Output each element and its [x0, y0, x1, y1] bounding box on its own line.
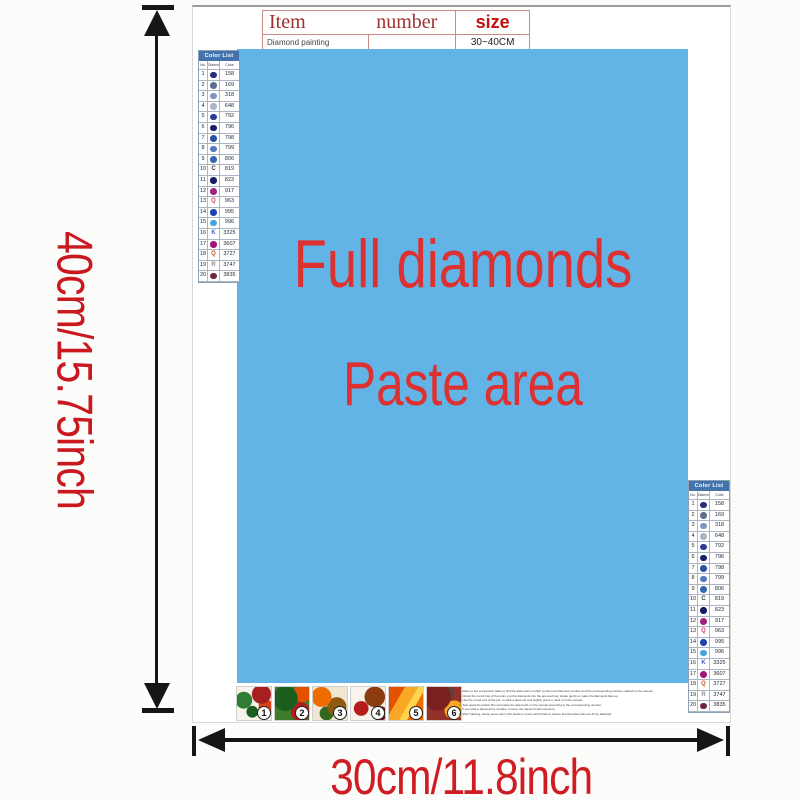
diamond-symbol-icon [698, 564, 710, 575]
color-row-number: 16 [689, 659, 698, 670]
color-row-code: 917 [710, 617, 729, 628]
diamond-symbol-icon: Q [698, 627, 710, 638]
steps-row: 123456 [236, 686, 464, 721]
instruction-line: 6. After finishing, clamp press them wit… [459, 712, 697, 717]
color-list-row: 13 Q 963 [199, 197, 239, 208]
color-list-col-no: No. [689, 491, 698, 500]
step-image-4: 4 [350, 686, 386, 721]
color-list-row: 2 169 [689, 511, 729, 522]
diamond-symbol-icon [698, 553, 710, 564]
color-list-col-diamond: Diamond [208, 61, 220, 70]
color-list-row: 1 158 [689, 500, 729, 511]
color-row-code: 996 [220, 218, 239, 229]
paste-area-subtitle: Paste area [343, 349, 583, 420]
color-row-code: 823 [710, 606, 729, 617]
color-list-row: 8 799 [199, 144, 239, 155]
arrow-horizontal-shaft [220, 738, 702, 742]
color-row-number: 12 [199, 187, 208, 198]
color-row-code: 963 [220, 197, 239, 208]
color-row-number: 6 [199, 123, 208, 134]
color-row-number: 14 [199, 208, 208, 219]
diamond-symbol-icon: Q [698, 680, 710, 691]
color-list-row: 13 Q 963 [689, 627, 729, 638]
step-number-badge: 2 [295, 706, 309, 720]
color-row-code: 648 [220, 102, 239, 113]
spec-header-item: Item [269, 11, 306, 34]
width-dimension-label: 30cm/11.8inch [192, 748, 730, 800]
color-list-row: 19 R 3747 [199, 261, 239, 272]
color-row-code: 3727 [220, 250, 239, 261]
diamond-symbol-icon: R [698, 691, 710, 702]
color-row-code: 3325 [710, 659, 729, 670]
color-row-number: 8 [689, 574, 698, 585]
color-row-code: 158 [710, 500, 729, 511]
color-list-row: 3 318 [199, 91, 239, 102]
diamond-symbol-icon [698, 511, 710, 522]
color-row-number: 12 [689, 617, 698, 628]
color-row-number: 8 [199, 144, 208, 155]
color-row-code: 3747 [710, 691, 729, 702]
diamond-symbol-icon [698, 670, 710, 681]
diamond-symbol-icon [208, 240, 220, 251]
diamond-symbol-icon [208, 176, 220, 187]
step-image-6: 6 [426, 686, 462, 721]
color-row-number: 19 [199, 261, 208, 272]
width-dimension-text: 30cm/11.8inch [330, 748, 592, 800]
color-list-body: 1 158 2 169 3 318 4 648 5 792 6 796 7 79… [199, 70, 239, 282]
color-row-code: 169 [220, 81, 239, 92]
color-list-row: 2 169 [199, 81, 239, 92]
color-row-number: 15 [689, 648, 698, 659]
color-list-row: 3 318 [689, 521, 729, 532]
step-number-badge: 1 [257, 706, 271, 720]
color-list-right: Color List No. Diamond Color 1 158 2 169… [688, 480, 730, 713]
color-list-row: 15 996 [199, 218, 239, 229]
color-row-code: 3325 [220, 229, 239, 240]
color-row-code: 796 [710, 553, 729, 564]
color-list-row: 5 792 [689, 542, 729, 553]
paste-area: Full diamonds Paste area [237, 49, 688, 683]
diamond-symbol-icon [208, 81, 220, 92]
color-row-code: 995 [710, 638, 729, 649]
color-row-code: 806 [220, 155, 239, 166]
diamond-symbol-icon [698, 574, 710, 585]
color-row-code: 798 [220, 134, 239, 145]
color-row-code: 798 [710, 564, 729, 575]
color-list-title: Color List [689, 481, 729, 491]
color-list-row: 10 C 819 [199, 165, 239, 176]
color-row-number: 5 [689, 542, 698, 553]
color-list-row: 14 995 [199, 208, 239, 219]
color-row-number: 9 [689, 585, 698, 596]
color-row-code: 996 [710, 648, 729, 659]
arrow-down-icon [144, 683, 170, 709]
color-list-row: 7 798 [199, 134, 239, 145]
diamond-symbol-icon [208, 123, 220, 134]
color-row-code: 3835 [220, 271, 239, 282]
diamond-symbol-icon: K [208, 229, 220, 240]
color-list-row: 11 823 [689, 606, 729, 617]
color-row-code: 917 [220, 187, 239, 198]
color-row-code: 995 [220, 208, 239, 219]
diamond-symbol-icon [208, 187, 220, 198]
color-list-row: 10 C 819 [689, 595, 729, 606]
color-list-row: 12 917 [689, 617, 729, 628]
color-list-row: 1 158 [199, 70, 239, 81]
color-row-number: 16 [199, 229, 208, 240]
diamond-symbol-icon [208, 102, 220, 113]
step-number-badge: 3 [333, 706, 347, 720]
color-list-row: 6 796 [199, 123, 239, 134]
diamond-symbol-icon: K [698, 659, 710, 670]
color-row-number: 14 [689, 638, 698, 649]
color-list-row: 9 806 [689, 585, 729, 596]
diamond-symbol-icon [698, 648, 710, 659]
color-row-number: 3 [689, 521, 698, 532]
color-row-number: 4 [199, 102, 208, 113]
color-row-code: 3727 [710, 680, 729, 691]
color-row-number: 2 [689, 511, 698, 522]
diamond-symbol-icon [698, 606, 710, 617]
diamond-symbol-icon [208, 91, 220, 102]
spec-header-number: number [376, 11, 437, 34]
color-list-row: 17 3607 [199, 240, 239, 251]
diamond-symbol-icon: R [208, 261, 220, 272]
color-list-body: 1 158 2 169 3 318 4 648 5 792 6 796 7 79… [689, 500, 729, 712]
height-dimension-label: 40cm/15.75inch [18, 205, 130, 535]
color-row-number: 9 [199, 155, 208, 166]
color-row-code: 799 [710, 574, 729, 585]
color-row-number: 20 [199, 271, 208, 282]
color-row-number: 7 [689, 564, 698, 575]
color-row-code: 3835 [710, 701, 729, 712]
instructions-text: 1. Refer to the comparison table to find… [459, 689, 697, 717]
color-row-number: 7 [199, 134, 208, 145]
color-row-code: 792 [220, 112, 239, 123]
diamond-symbol-icon [208, 112, 220, 123]
color-row-number: 11 [689, 606, 698, 617]
color-row-code: 158 [220, 70, 239, 81]
color-list-col-diamond: Diamond [698, 491, 710, 500]
product-image: 40cm/15.75inch Item number size Diamond … [0, 0, 800, 800]
diamond-symbol-icon: C [698, 595, 710, 606]
color-row-number: 2 [199, 81, 208, 92]
color-row-number: 13 [689, 627, 698, 638]
color-list-row: 4 648 [199, 102, 239, 113]
color-row-code: 823 [220, 176, 239, 187]
color-list-row: 12 917 [199, 187, 239, 198]
color-list-row: 17 3607 [689, 670, 729, 681]
color-row-number: 5 [199, 112, 208, 123]
diamond-symbol-icon [698, 521, 710, 532]
diamond-symbol-icon [208, 208, 220, 219]
color-list-row: 5 792 [199, 112, 239, 123]
color-row-code: 806 [710, 585, 729, 596]
diamond-symbol-icon: C [208, 165, 220, 176]
color-row-number: 11 [199, 176, 208, 187]
color-row-number: 17 [689, 670, 698, 681]
color-list-left: Color List No. Diamond Color 1 158 2 169… [198, 50, 240, 283]
diamond-symbol-icon [208, 271, 220, 282]
color-row-number: 10 [689, 595, 698, 606]
spec-table: Item number size Diamond painting 30~40C… [262, 10, 530, 51]
step-image-2: 2 [274, 686, 310, 721]
color-row-number: 18 [199, 250, 208, 261]
spec-header-size: size [456, 11, 530, 35]
step-image-5: 5 [388, 686, 424, 721]
color-list-title: Color List [199, 51, 239, 61]
color-row-number: 1 [689, 500, 698, 511]
diamond-symbol-icon [698, 532, 710, 543]
arrow-bottom-cap [142, 708, 174, 713]
color-list-row: 20 3835 [199, 271, 239, 282]
height-dimension-text: 40cm/15.75inch [45, 231, 103, 509]
color-list-row: 4 648 [689, 532, 729, 543]
step-number-badge: 5 [409, 706, 423, 720]
diamond-symbol-icon [698, 585, 710, 596]
canvas-sheet: Item number size Diamond painting 30~40C… [192, 5, 731, 723]
diamond-symbol-icon [208, 144, 220, 155]
color-list-row: 7 798 [689, 564, 729, 575]
color-list-col-color: Color [710, 491, 729, 500]
arrow-vertical-shaft [155, 31, 158, 688]
color-row-code: 799 [220, 144, 239, 155]
color-row-code: 963 [710, 627, 729, 638]
diamond-symbol-icon [698, 500, 710, 511]
color-row-number: 10 [199, 165, 208, 176]
diamond-symbol-icon [698, 701, 710, 712]
color-row-code: 318 [710, 521, 729, 532]
diamond-symbol-icon [698, 617, 710, 628]
color-row-code: 796 [220, 123, 239, 134]
step-image-3: 3 [312, 686, 348, 721]
color-row-code: 3607 [220, 240, 239, 251]
color-row-code: 819 [220, 165, 239, 176]
color-list-row: 6 796 [689, 553, 729, 564]
color-row-number: 13 [199, 197, 208, 208]
step-image-1: 1 [236, 686, 272, 721]
color-list-row: 8 799 [689, 574, 729, 585]
color-list-row: 11 823 [199, 176, 239, 187]
paste-area-title: Full diamonds [293, 225, 632, 303]
color-list-col-no: No. [199, 61, 208, 70]
diamond-symbol-icon [698, 542, 710, 553]
color-row-number: 4 [689, 532, 698, 543]
color-row-code: 792 [710, 542, 729, 553]
diamond-symbol-icon [208, 155, 220, 166]
color-row-code: 3747 [220, 261, 239, 272]
color-row-code: 318 [220, 91, 239, 102]
color-list-row: 16 K 3325 [199, 229, 239, 240]
color-list-row: 15 996 [689, 648, 729, 659]
color-row-number: 3 [199, 91, 208, 102]
diamond-symbol-icon [208, 218, 220, 229]
color-row-number: 15 [199, 218, 208, 229]
diamond-symbol-icon: Q [208, 197, 220, 208]
color-list-row: 9 806 [199, 155, 239, 166]
color-list-row: 16 K 3325 [689, 659, 729, 670]
diamond-symbol-icon [698, 638, 710, 649]
color-row-number: 6 [689, 553, 698, 564]
diamond-symbol-icon [208, 134, 220, 145]
color-row-code: 3607 [710, 670, 729, 681]
diamond-symbol-icon: Q [208, 250, 220, 261]
color-list-header: No. Diamond Color [199, 61, 239, 70]
step-number-badge: 4 [371, 706, 385, 720]
diamond-symbol-icon [208, 70, 220, 81]
color-row-number: 1 [199, 70, 208, 81]
color-row-code: 819 [710, 595, 729, 606]
color-list-header: No. Diamond Color [689, 491, 729, 500]
color-list-row: 18 Q 3727 [199, 250, 239, 261]
color-list-row: 14 995 [689, 638, 729, 649]
color-list-col-color: Color [220, 61, 239, 70]
color-row-number: 17 [199, 240, 208, 251]
color-row-code: 169 [710, 511, 729, 522]
color-row-code: 648 [710, 532, 729, 543]
